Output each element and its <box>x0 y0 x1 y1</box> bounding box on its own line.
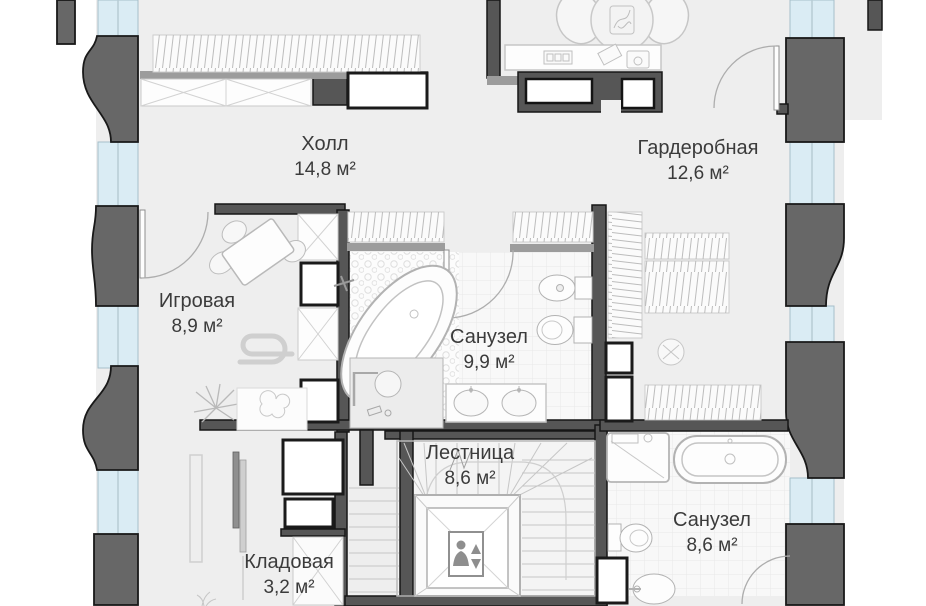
room-label-bathroom-1: Санузел 9,9 м² <box>450 324 528 376</box>
shower-tray-icon <box>607 433 669 482</box>
shower-unit-icon <box>350 358 443 428</box>
elevator-icon <box>415 495 520 596</box>
room-area: 3,2 м² <box>244 575 334 601</box>
toilet-icon <box>537 316 592 345</box>
room-label-playroom: Игровая 8,9 м² <box>159 288 235 340</box>
room-label-stairs: Лестница 8,6 м² <box>426 440 514 492</box>
double-sink-icon <box>446 384 546 422</box>
door-leaf <box>140 210 145 278</box>
room-name: Холл <box>294 131 356 157</box>
room-name: Гардеробная <box>638 135 759 161</box>
hall-storage-unit <box>518 72 662 113</box>
room-name: Лестница <box>426 440 514 466</box>
sliding-door <box>240 460 246 552</box>
room-label-hall: Холл 14,8 м² <box>294 131 356 183</box>
room-area: 9,9 м² <box>450 350 528 376</box>
room-label-storage: Кладовая 3,2 м² <box>244 549 334 601</box>
room-area: 8,6 м² <box>426 466 514 492</box>
left-facade <box>57 0 138 605</box>
room-area: 8,6 м² <box>673 533 751 559</box>
toilet2-icon <box>608 524 652 552</box>
floor-plan-graphics <box>0 0 926 606</box>
bidet-icon <box>539 275 592 301</box>
room-label-bathroom-2: Санузел 8,6 м² <box>673 507 751 559</box>
room-area: 8,9 м² <box>159 314 235 340</box>
room-area: 14,8 м² <box>294 157 356 183</box>
room-name: Кладовая <box>244 549 334 575</box>
room-name: Санузел <box>450 324 528 350</box>
door-leaf <box>774 46 779 110</box>
bathtub2-icon <box>674 436 786 483</box>
sliding-door <box>233 452 239 528</box>
room-label-wardrobe: Гардеробная 12,6 м² <box>638 135 759 187</box>
room-area: 12,6 м² <box>638 161 759 187</box>
room-name: Игровая <box>159 288 235 314</box>
floor-plan: Холл 14,8 м² Гардеробная 12,6 м² Игровая… <box>0 0 926 606</box>
room-name: Санузел <box>673 507 751 533</box>
